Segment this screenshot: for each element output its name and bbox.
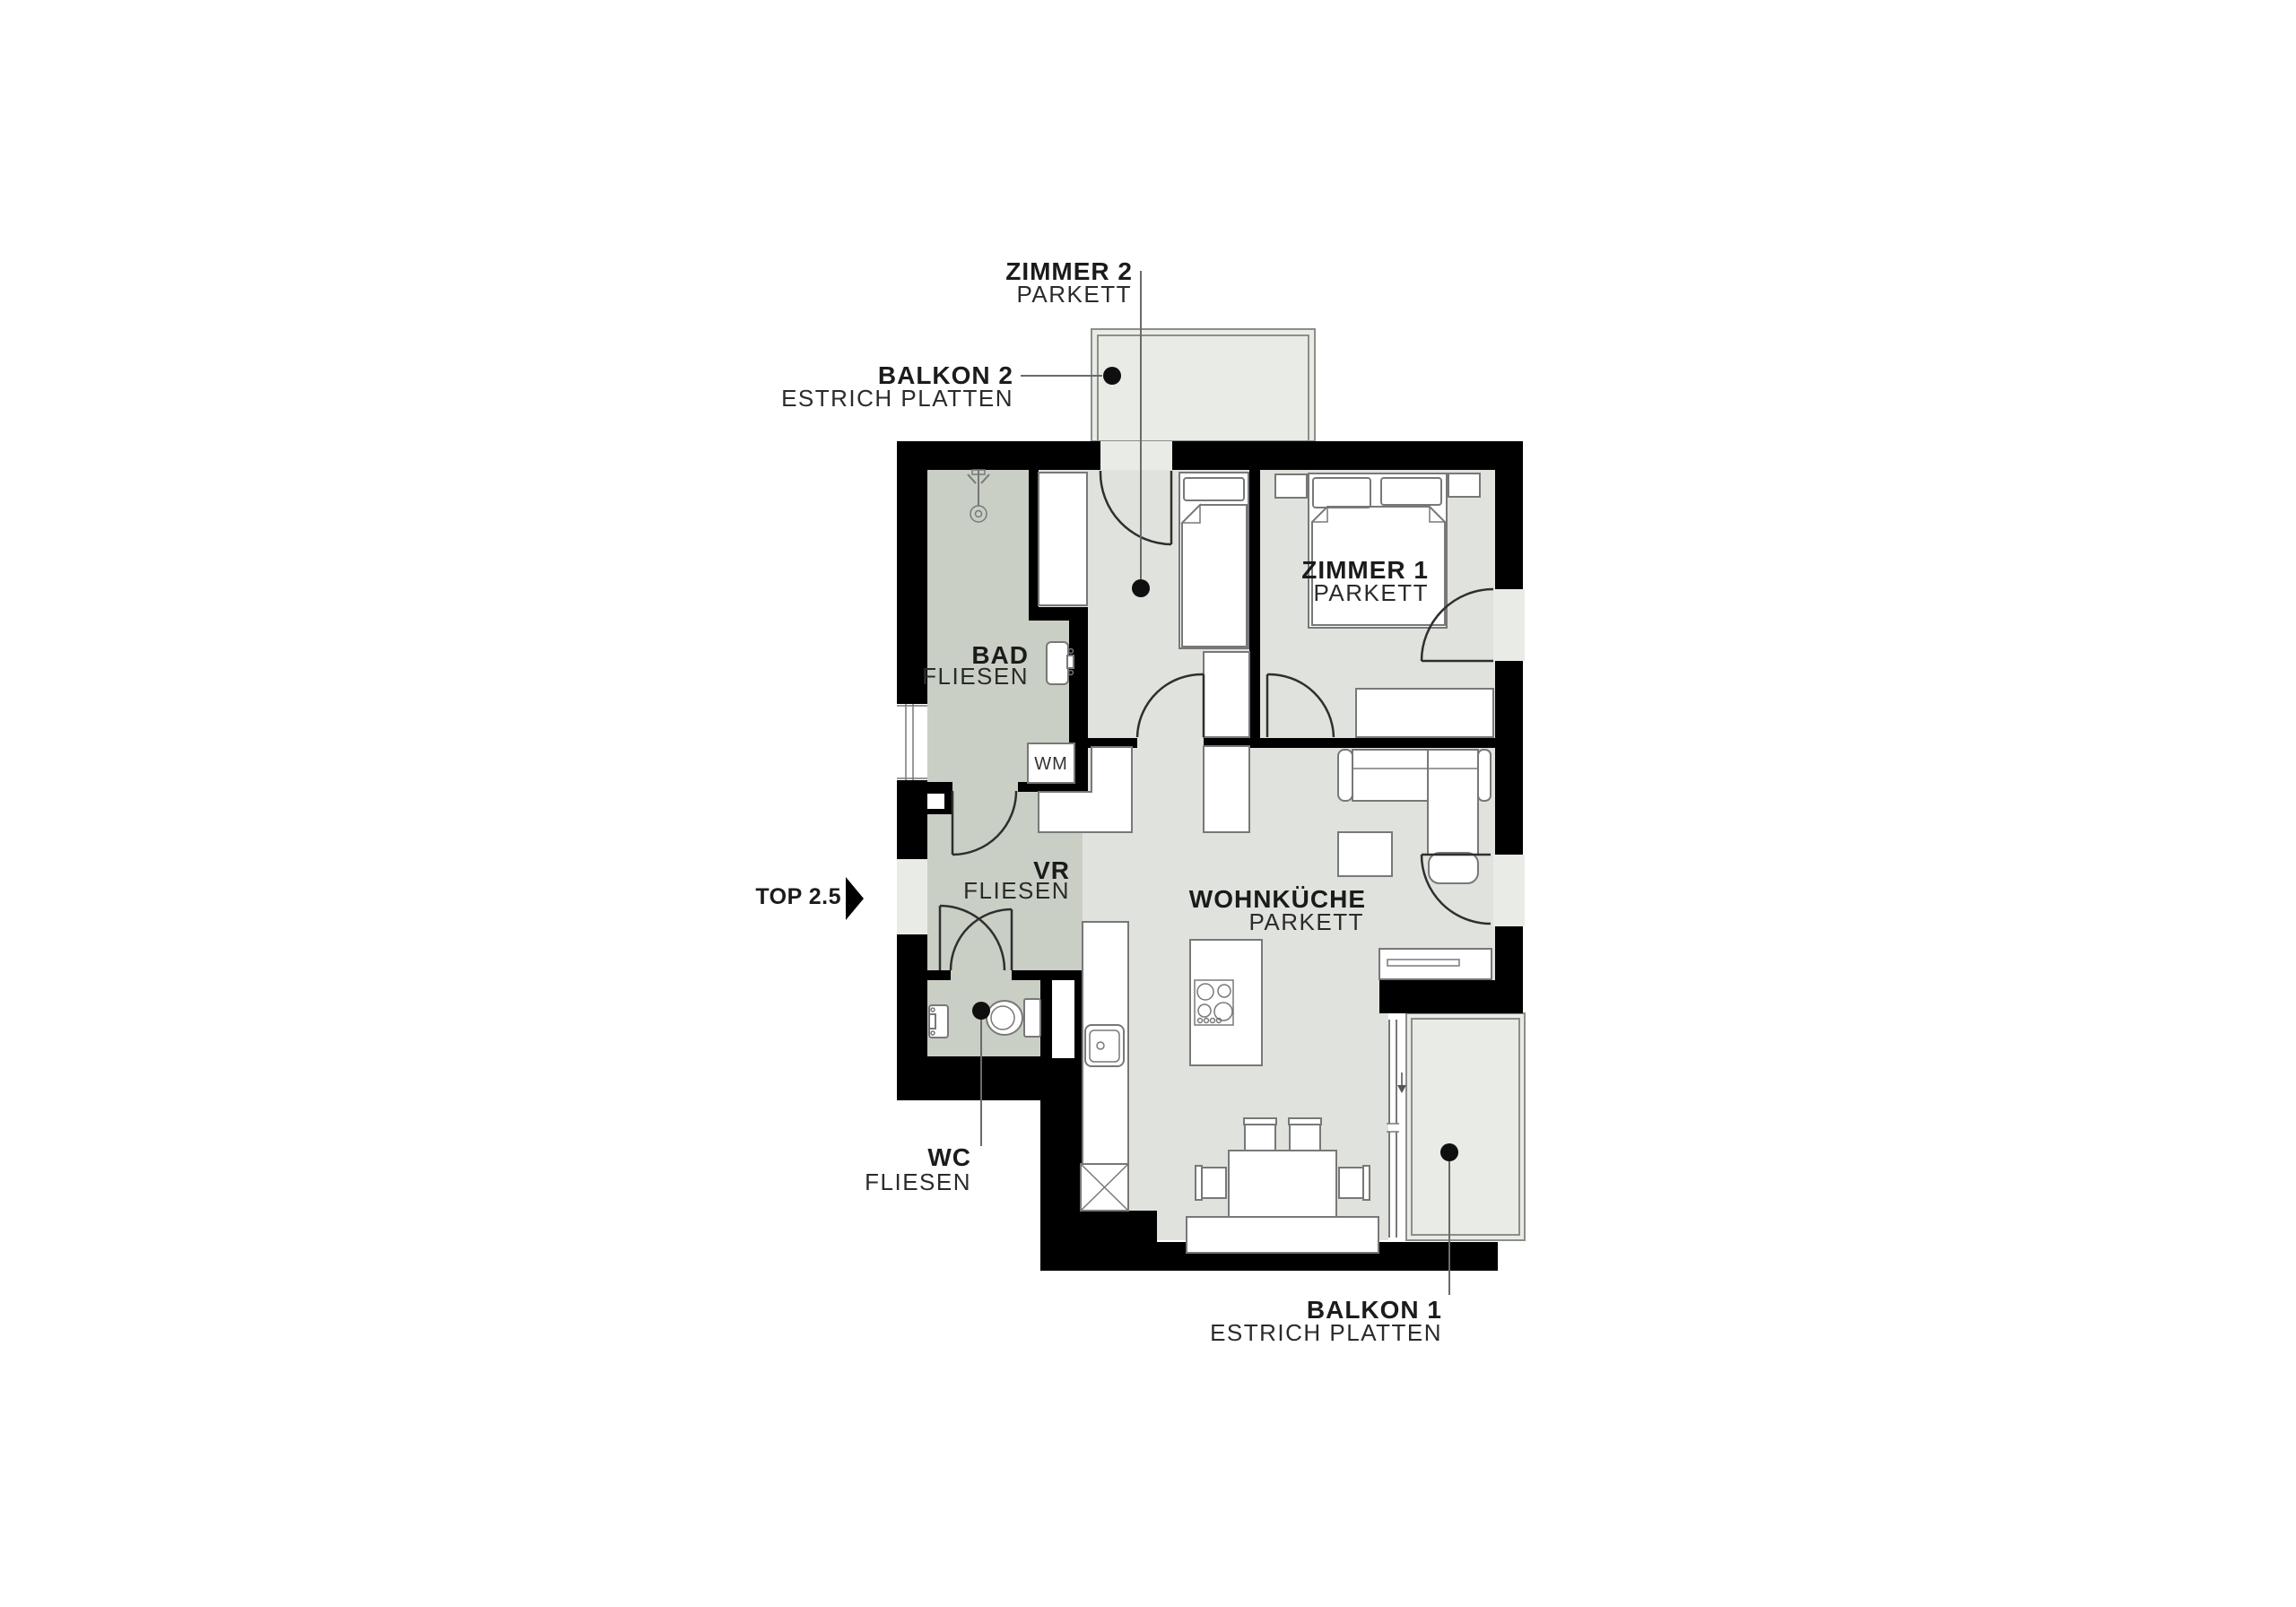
unit-label: TOP 2.5 [755,884,841,909]
floor-plan-page: WM [0,0,2296,1607]
wc-sink-icon [929,1005,948,1038]
nightstand [1275,474,1307,498]
leader-dot-wc [972,1002,990,1020]
window-niche-zimmer1 [1493,589,1525,661]
chair [1290,1125,1320,1151]
dining-table [1229,1151,1336,1217]
nightstand [1448,473,1480,497]
chair [1202,1168,1226,1198]
shaft-box-icon [1081,1164,1128,1211]
floor-plan: WM [0,0,2296,1607]
chair [1339,1168,1363,1198]
chair [1245,1125,1275,1151]
washing-machine-label: WM [1034,754,1068,774]
chair [1196,1166,1202,1200]
washing-machine: WM [1028,743,1074,783]
leader-dot-balkon2 [1103,367,1121,385]
chair [1363,1166,1370,1200]
sliding-door-balcony1 [1387,1020,1406,1238]
coffee-table [1338,832,1392,876]
balcony-1 [1406,1013,1525,1240]
entry-arrow-icon [846,877,864,920]
shaft [1052,980,1074,1058]
desk [1204,652,1249,737]
label-balkon2: BALKON 2 ESTRICH PLATTEN [781,361,1013,412]
label-wc: WC FLIESEN [865,1143,971,1195]
kitchen-island [1190,940,1262,1065]
label-zimmer1: ZIMMER 1 PARKETT [1301,556,1429,606]
zimmer1-floor: PARKETT [1314,579,1429,606]
kitchen-tall-cabinet [1204,746,1249,832]
balkon1-floor: ESTRICH PLATTEN [1210,1319,1442,1346]
bed-single [1179,473,1248,648]
toilet-icon [987,999,1040,1037]
balcony-2 [1091,329,1315,441]
dresser [1356,689,1493,737]
zimmer2-floor: PARKETT [1017,281,1132,308]
chair [1244,1118,1276,1125]
kitchen-counter [1081,922,1128,1211]
sideboard [1379,949,1492,979]
wardrobe [1039,473,1087,605]
label-balkon1: BALKON 1 ESTRICH PLATTEN [1210,1296,1442,1346]
window-icon [897,704,927,780]
vr-floor: FLIESEN [963,877,1070,904]
arrow-down-icon [1397,1073,1406,1093]
balcony2-door-opening [1100,441,1172,470]
balkon2-floor: ESTRICH PLATTEN [781,385,1013,412]
bench [1187,1217,1378,1253]
wohnkueche-floor: PARKETT [1249,908,1364,935]
kitchen-sink-icon [1085,1025,1124,1066]
entry-marker: TOP 2.5 [755,877,864,920]
label-zimmer2: ZIMMER 2 PARKETT [1005,257,1133,308]
bad-floor: FLIESEN [922,663,1029,690]
leader-dot-balkon1 [1440,1143,1458,1161]
entry-opening [897,859,927,934]
wall-niche [927,794,944,809]
leader-dot-zimmer2 [1132,579,1150,597]
chair [1289,1118,1321,1125]
wc-name: WC [927,1143,971,1171]
wc-floor: FLIESEN [865,1168,971,1195]
window-niche-wohnkueche [1493,855,1525,926]
